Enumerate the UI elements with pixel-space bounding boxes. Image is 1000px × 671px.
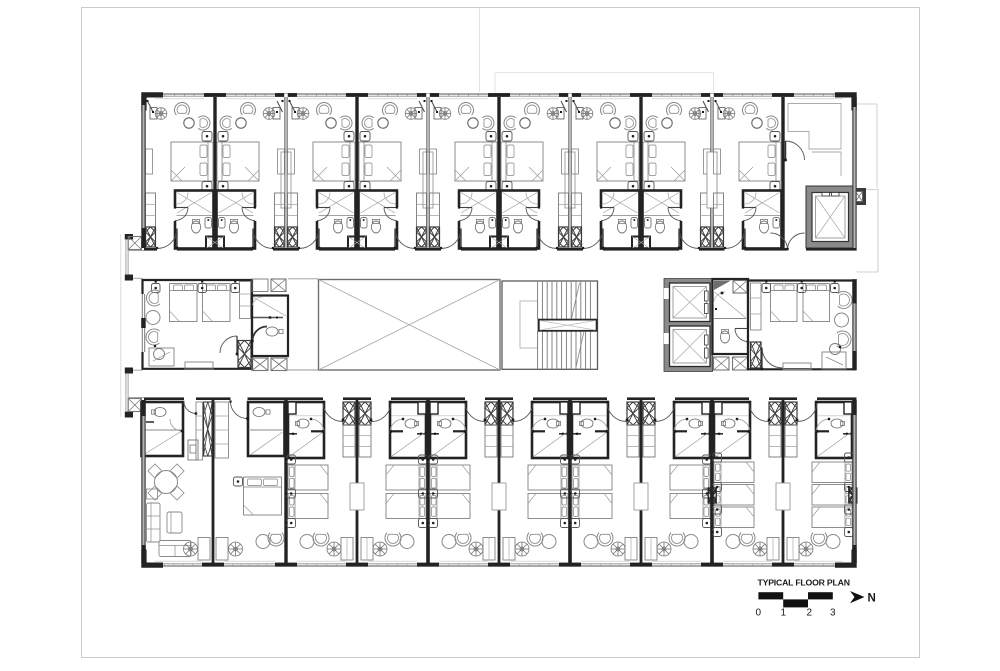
svg-text:TYPICAL FLOOR PLAN: TYPICAL FLOOR PLAN — [758, 578, 850, 588]
svg-text:2: 2 — [807, 608, 813, 619]
svg-text:N: N — [868, 593, 876, 605]
svg-text:3: 3 — [830, 608, 836, 619]
svg-text:0: 0 — [756, 608, 762, 619]
svg-text:1: 1 — [781, 608, 787, 619]
